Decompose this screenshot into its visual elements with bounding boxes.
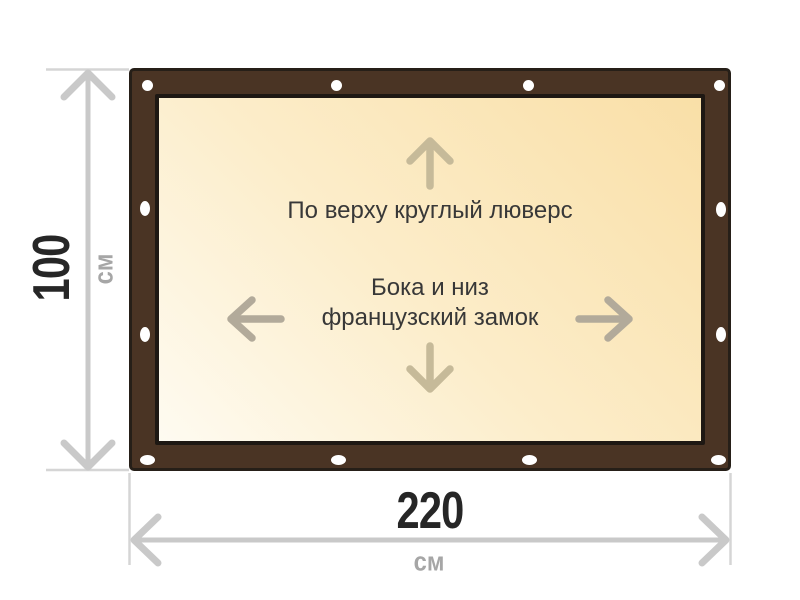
sides-bottom-label-line2: французский замок	[130, 303, 730, 333]
banner-frame	[129, 68, 731, 471]
grommet	[714, 80, 725, 91]
grommet	[523, 80, 534, 91]
tarp-dimension-diagram: По верху круглый люверс Бока и низ франц…	[0, 0, 800, 600]
height-dimension-unit: см	[89, 254, 120, 285]
sides-bottom-label-line1: Бока и низ	[130, 273, 730, 303]
sides-bottom-label: Бока и низ французский замок	[130, 273, 730, 333]
grommet	[142, 80, 153, 91]
width-dimension-unit: см	[414, 547, 445, 578]
grommet	[140, 455, 155, 465]
grommet	[711, 455, 726, 465]
banner-canvas	[155, 94, 705, 445]
width-dimension-value: 220	[396, 481, 463, 541]
grommet	[331, 80, 342, 91]
top-edge-label: По верху круглый люверс	[130, 196, 730, 226]
grommet	[331, 455, 346, 465]
grommet	[522, 455, 537, 465]
height-dimension-value: 100	[22, 234, 82, 301]
